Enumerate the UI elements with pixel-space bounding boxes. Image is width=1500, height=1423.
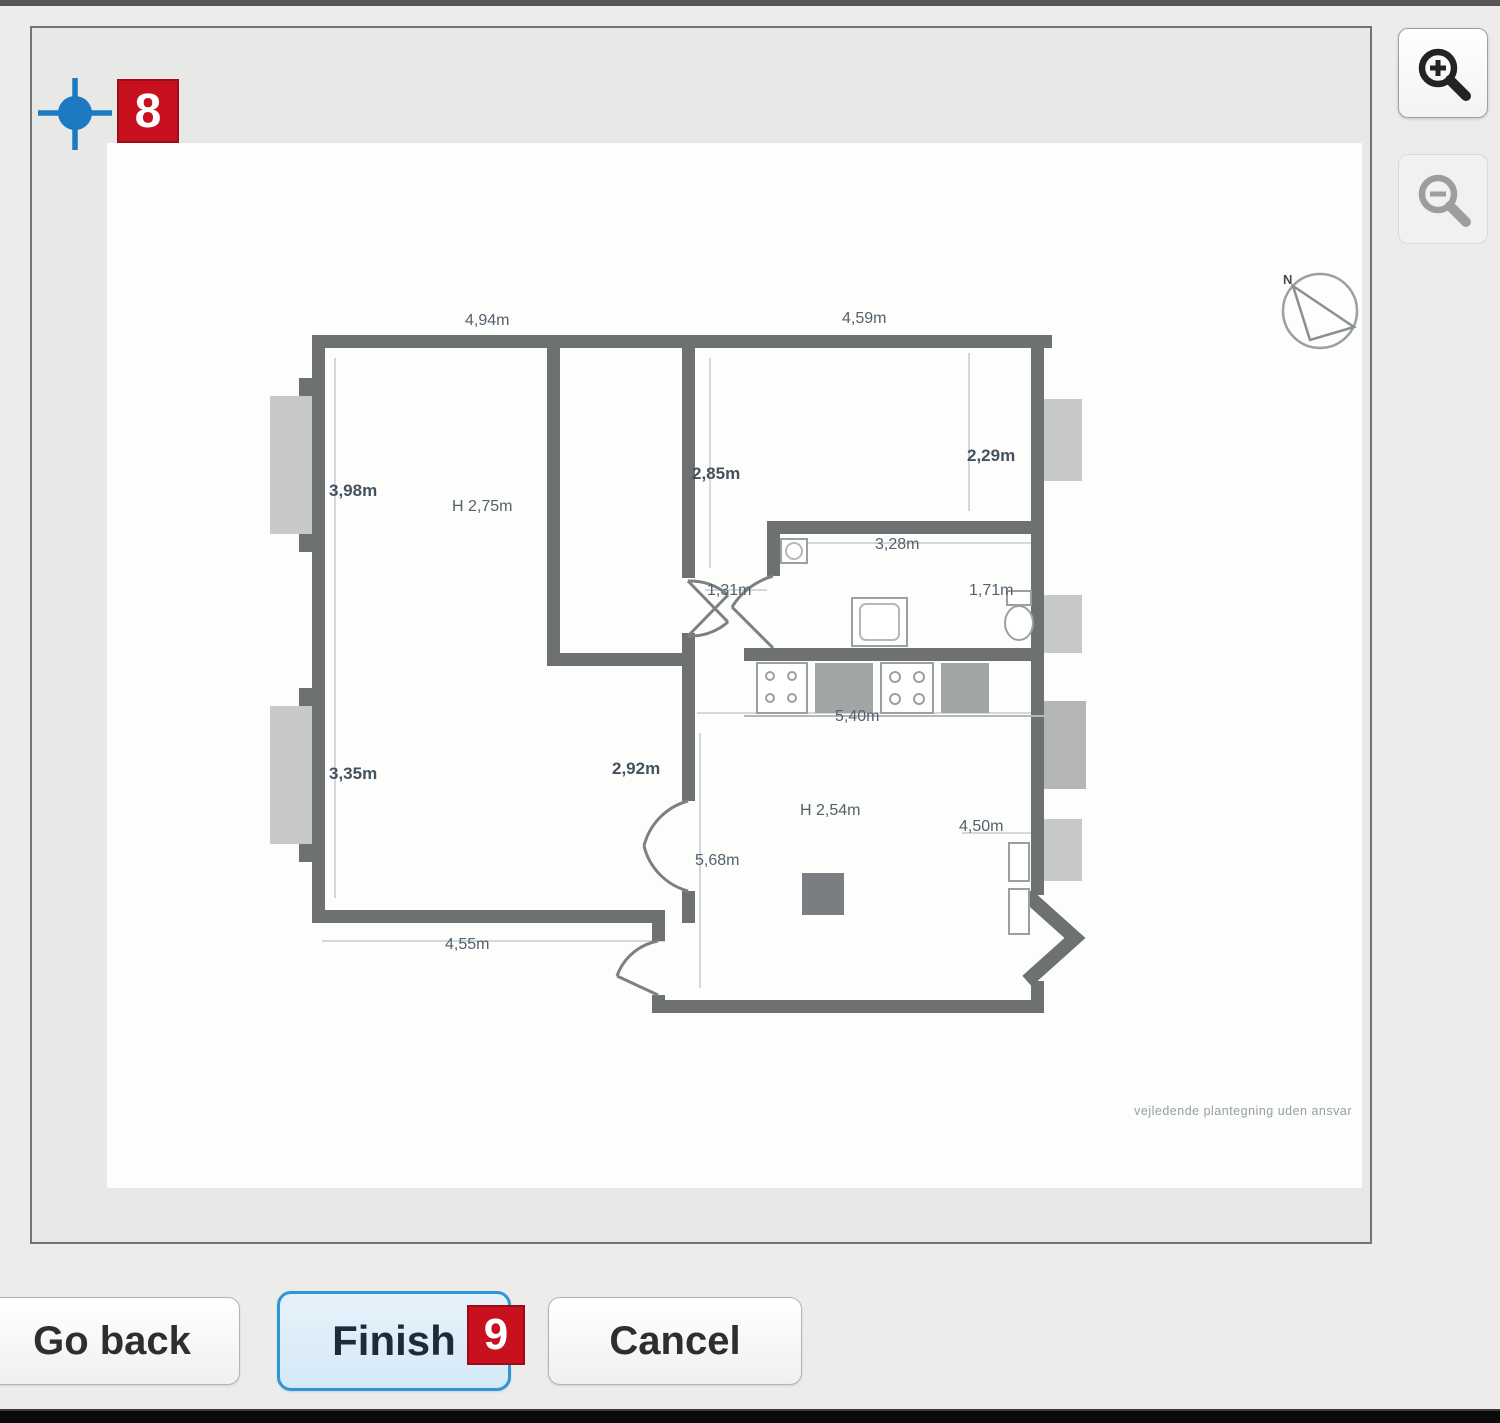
dimension-label: 5,68m: [695, 852, 739, 869]
compass-north-label: N: [1283, 272, 1292, 287]
dimension-labels: 4,94m 4,59m 3,98m H 2,75m 2,85m 2,29m 3,…: [329, 310, 1015, 953]
kitchen-counter: [744, 663, 1044, 716]
dimension-label: 3,28m: [875, 536, 919, 553]
dimension-label: 2,85m: [692, 464, 740, 483]
cancel-button[interactable]: Cancel: [548, 1297, 802, 1385]
floor-plan-windows: [270, 396, 1086, 881]
dimension-label: 2,29m: [967, 446, 1015, 465]
dimension-label: 5,40m: [835, 708, 879, 725]
zoom-out-button[interactable]: [1398, 154, 1488, 244]
magnifier-minus-icon: [1412, 168, 1474, 230]
plan-canvas[interactable]: N 4,94m 4,59m 3,98m H 2,75m 2,85m 2,29m …: [30, 26, 1372, 1244]
step-badge-9: 9: [467, 1305, 525, 1365]
floor-plan-image: N 4,94m 4,59m 3,98m H 2,75m 2,85m 2,29m …: [107, 143, 1362, 1188]
window-top-edge: [0, 0, 1500, 6]
dimension-label: 1,71m: [969, 582, 1013, 599]
step-badge-8: 8: [117, 79, 179, 143]
zoom-in-button[interactable]: [1398, 28, 1488, 118]
column: [802, 873, 844, 915]
compass-icon: N: [1283, 272, 1357, 348]
floor-plan-sheet: N 4,94m 4,59m 3,98m H 2,75m 2,85m 2,29m …: [107, 143, 1362, 1188]
dimension-label: 3,35m: [329, 764, 377, 783]
dimension-label: 4,94m: [465, 312, 509, 329]
dimension-label: 4,55m: [445, 936, 489, 953]
disclaimer-text: vejledende plantegning uden ansvar: [1134, 1104, 1352, 1118]
dimension-label: 4,50m: [959, 818, 1003, 835]
floor-plan-walls: [299, 335, 1052, 1013]
dialog-window: N 4,94m 4,59m 3,98m H 2,75m 2,85m 2,29m …: [0, 0, 1500, 1423]
dimension-label: H 2,75m: [452, 498, 512, 515]
magnifier-plus-icon: [1412, 42, 1474, 104]
dimension-label: 3,98m: [329, 481, 377, 500]
dimension-label: 2,92m: [612, 759, 660, 778]
dimension-label: 4,59m: [842, 310, 886, 327]
dimension-label: 1,31m: [707, 582, 751, 599]
window-bottom-edge: [0, 1409, 1500, 1423]
dimension-label: H 2,54m: [800, 802, 860, 819]
go-back-button[interactable]: Go back: [0, 1297, 240, 1385]
